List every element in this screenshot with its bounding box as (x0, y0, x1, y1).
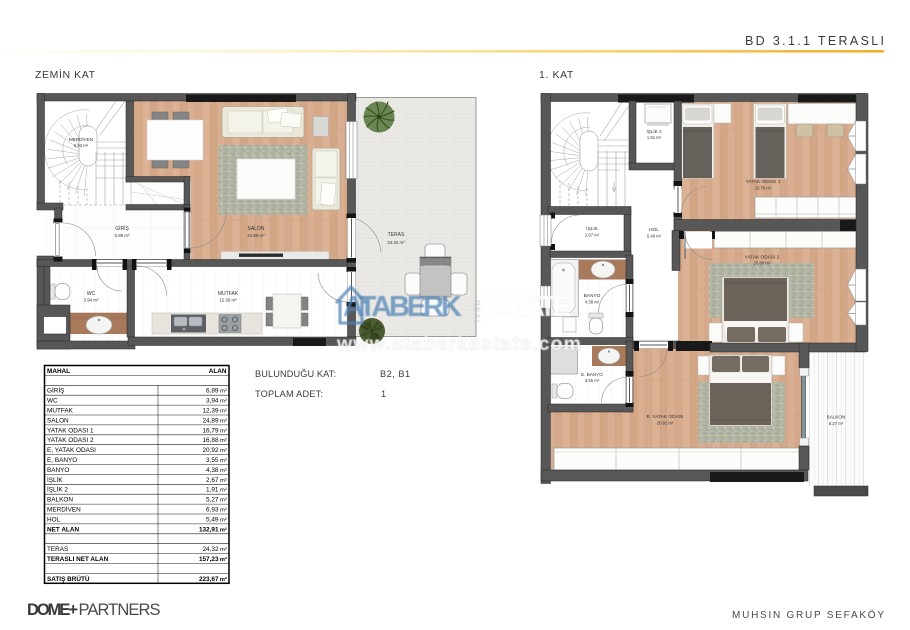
svg-text:BANYO: BANYO (584, 293, 601, 299)
svg-text:HOL: HOL (47, 516, 61, 523)
svg-text:3.94 m²: 3.94 m² (84, 298, 99, 303)
svg-text:m²: m² (220, 468, 227, 474)
svg-text:WC: WC (87, 291, 96, 297)
svg-text:m²: m² (220, 508, 227, 514)
svg-text:4.38 m²: 4.38 m² (585, 300, 600, 305)
svg-text:6.93 m²: 6.93 m² (74, 143, 89, 148)
svg-text:2.67 m²: 2.67 m² (585, 233, 600, 238)
svg-text:HOL: HOL (649, 227, 659, 233)
svg-text:m²: m² (220, 576, 227, 583)
svg-text:MERDİVEN: MERDİVEN (69, 136, 93, 142)
svg-text:TOPLAM ADET:: TOPLAM ADET: (255, 389, 323, 399)
svg-text:ALAN: ALAN (209, 368, 227, 375)
svg-text:1: 1 (381, 389, 386, 399)
svg-text:20,92: 20,92 (203, 447, 219, 454)
svg-text:5.27 m²: 5.27 m² (829, 421, 844, 426)
svg-text:5,49: 5,49 (206, 516, 219, 523)
svg-text:PARTNERS: PARTNERS (79, 601, 161, 619)
svg-text:m²: m² (220, 526, 227, 533)
svg-text:ZEMİN KAT: ZEMİN KAT (35, 68, 96, 81)
svg-text:m²: m² (220, 517, 227, 523)
svg-text:MUHSIN GRUP SEFAKÖY: MUHSIN GRUP SEFAKÖY (732, 609, 884, 621)
svg-text:m²: m² (220, 448, 227, 454)
svg-text:YATAK ODASI 1: YATAK ODASI 1 (746, 179, 781, 185)
svg-text:İŞLİK: İŞLİK (47, 475, 63, 484)
svg-text:E. YATAK ODASI: E. YATAK ODASI (647, 414, 684, 420)
svg-text:12,39: 12,39 (203, 408, 219, 415)
svg-text:m²: m² (220, 478, 227, 484)
svg-text:24.89 m²: 24.89 m² (247, 233, 265, 238)
svg-text:4,38: 4,38 (206, 467, 219, 474)
svg-text:SATIŞ BRÜTÜ: SATIŞ BRÜTÜ (47, 574, 90, 583)
svg-text:ESTATE: ESTATE (482, 291, 572, 323)
svg-text:SALON: SALON (47, 417, 69, 424)
svg-text:m²: m² (220, 547, 227, 553)
svg-text:5.49 m²: 5.49 m² (647, 234, 662, 239)
svg-text:6,93: 6,93 (206, 507, 219, 514)
svg-text:MAHAL: MAHAL (47, 368, 70, 375)
svg-text:3,55: 3,55 (206, 457, 219, 464)
svg-text:m²: m² (220, 389, 227, 395)
svg-text:6,89: 6,89 (206, 388, 219, 395)
svg-text:16.79 m²: 16.79 m² (755, 186, 772, 191)
svg-text:1. KAT: 1. KAT (539, 69, 574, 81)
svg-text:12.39 m²: 12.39 m² (219, 298, 237, 303)
svg-text:5,27: 5,27 (206, 497, 219, 504)
svg-text:DOME+: DOME+ (27, 601, 78, 619)
svg-text:www.ataberkestate.com: www.ataberkestate.com (336, 333, 581, 355)
svg-text:E, BANYO: E, BANYO (47, 457, 77, 464)
svg-text:REAL: REAL (472, 300, 481, 326)
svg-text:İŞLİK: İŞLİK (586, 225, 599, 232)
svg-text:GİRİŞ: GİRİŞ (47, 386, 64, 395)
svg-text:m²: m² (220, 399, 227, 405)
svg-text:NET ALAN: NET ALAN (47, 526, 79, 533)
svg-text:3,94: 3,94 (206, 398, 219, 405)
svg-text:WC: WC (47, 398, 58, 405)
svg-text:16,79: 16,79 (203, 427, 219, 434)
svg-text:2,67: 2,67 (206, 477, 219, 484)
svg-text:223,67: 223,67 (199, 576, 219, 583)
svg-text:132,91: 132,91 (199, 526, 219, 533)
svg-text:B2, B1: B2, B1 (380, 369, 411, 379)
svg-text:BULUNDUĞU KAT:: BULUNDUĞU KAT: (255, 369, 336, 379)
svg-text:BALKON: BALKON (827, 415, 846, 420)
svg-text:24,32: 24,32 (203, 546, 219, 553)
svg-text:E. BANYO: E. BANYO (581, 372, 603, 377)
svg-text:TERAS: TERAS (388, 232, 405, 238)
svg-text:YATAK ODASI 1: YATAK ODASI 1 (47, 427, 94, 434)
svg-text:16,88: 16,88 (203, 437, 219, 444)
svg-text:MUTFAK: MUTFAK (47, 408, 74, 415)
svg-text:YATAK ODASI 2: YATAK ODASI 2 (47, 437, 94, 444)
svg-text:24.32 m²: 24.32 m² (387, 240, 405, 245)
svg-text:BANYO: BANYO (47, 467, 69, 474)
svg-text:TERAS: TERAS (47, 546, 68, 553)
svg-text:3.55 m²: 3.55 m² (585, 378, 600, 383)
svg-text:m²: m² (220, 488, 227, 494)
svg-text:24,89: 24,89 (203, 417, 219, 424)
svg-text:m²: m² (220, 418, 227, 424)
svg-text:1,91: 1,91 (206, 487, 219, 494)
svg-text:MUTFAK: MUTFAK (218, 291, 239, 297)
svg-text:SALON: SALON (248, 226, 265, 232)
svg-text:m²: m² (220, 498, 227, 504)
svg-text:İŞLİK 2: İŞLİK 2 (47, 485, 68, 494)
svg-text:m²: m² (220, 458, 227, 464)
svg-text:GİRİŞ: GİRİŞ (115, 225, 129, 232)
svg-text:BALKON: BALKON (47, 497, 73, 504)
svg-text:E, YATAK ODASI: E, YATAK ODASI (47, 447, 96, 454)
svg-text:1.91 m²: 1.91 m² (647, 135, 662, 140)
svg-text:m²: m² (220, 438, 227, 444)
svg-text:İŞLİK 2: İŞLİK 2 (646, 128, 662, 134)
svg-text:6.89 m²: 6.89 m² (115, 233, 130, 238)
svg-text:20.92 m²: 20.92 m² (657, 421, 674, 426)
svg-text:m²: m² (220, 428, 227, 434)
svg-text:m²: m² (220, 409, 227, 415)
svg-text:MERDİVEN: MERDİVEN (47, 505, 81, 514)
svg-text:m²: m² (220, 556, 227, 563)
svg-text:ATABERK: ATABERK (343, 291, 462, 323)
svg-text:16.88 m²: 16.88 m² (754, 261, 771, 266)
svg-text:TERASLI NET ALAN: TERASLI NET ALAN (47, 556, 109, 563)
svg-text:157,23: 157,23 (199, 556, 219, 563)
